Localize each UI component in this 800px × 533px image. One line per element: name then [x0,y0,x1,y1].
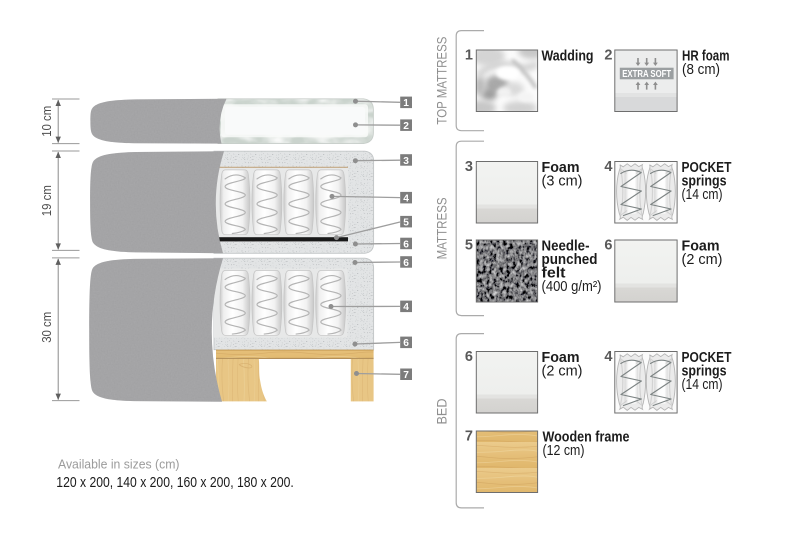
svg-text:6: 6 [403,338,409,349]
svg-text:4: 4 [403,194,409,205]
svg-text:2: 2 [403,121,409,132]
svg-text:(3 cm): (3 cm) [542,174,583,190]
svg-text:4: 4 [604,159,612,175]
svg-text:4: 4 [604,349,612,365]
svg-text:(12 cm): (12 cm) [543,443,585,459]
svg-text:BED: BED [434,399,450,425]
svg-text:7: 7 [403,370,409,381]
svg-text:7: 7 [465,429,473,445]
svg-text:1: 1 [403,98,409,109]
svg-text:19 cm: 19 cm [39,185,54,216]
svg-text:2: 2 [604,48,612,64]
svg-text:TOP MATTRESS: TOP MATTRESS [434,37,450,125]
svg-text:6: 6 [604,238,612,254]
svg-text:120 x 200, 140 x 200, 160 x 20: 120 x 200, 140 x 200, 160 x 200, 180 x 2… [56,475,293,491]
svg-text:(2 cm): (2 cm) [682,252,723,268]
svg-text:30 cm: 30 cm [39,312,54,343]
svg-text:Available in sizes (cm): Available in sizes (cm) [58,457,180,472]
svg-text:EXTRA SOFT: EXTRA SOFT [622,69,671,80]
svg-text:(14 cm): (14 cm) [682,187,723,203]
svg-text:(8 cm): (8 cm) [682,62,720,78]
svg-text:5: 5 [403,218,409,229]
svg-text:(400 g/m²): (400 g/m²) [542,279,602,295]
svg-text:Wadding: Wadding [542,49,594,65]
svg-text:(14 cm): (14 cm) [682,377,723,393]
svg-text:(2 cm): (2 cm) [542,364,583,380]
svg-text:4: 4 [403,302,409,313]
svg-text:3: 3 [403,156,409,167]
svg-text:MATTRESS: MATTRESS [434,197,450,259]
svg-text:6: 6 [403,239,409,250]
svg-text:3: 3 [465,159,473,175]
svg-text:5: 5 [465,238,473,254]
svg-text:6: 6 [465,349,473,365]
svg-text:1: 1 [465,48,473,64]
svg-text:10 cm: 10 cm [39,106,54,137]
svg-text:6: 6 [403,258,409,269]
